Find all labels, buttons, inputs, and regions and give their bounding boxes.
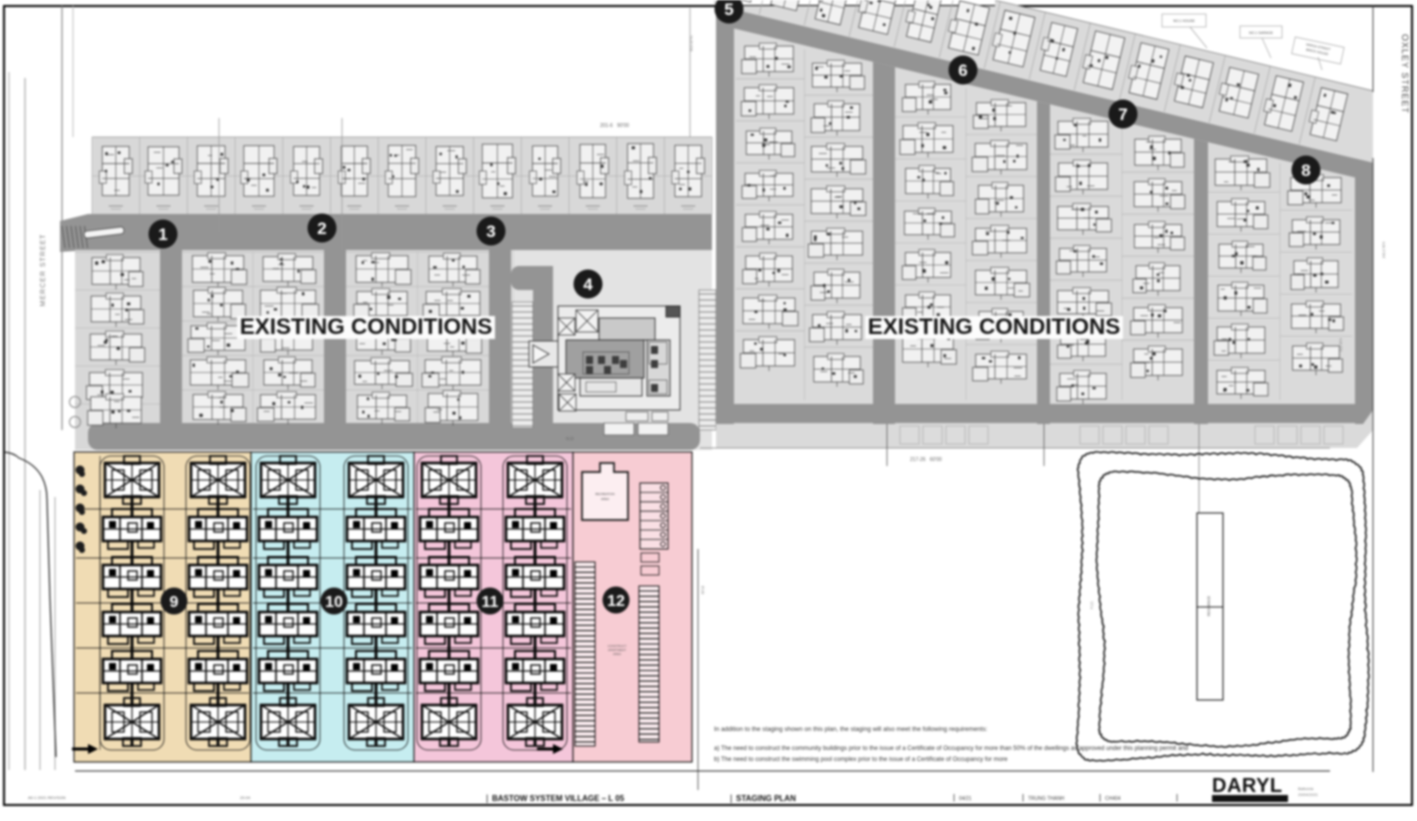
svg-text:RECREATION: RECREATION <box>595 492 614 496</box>
svg-text:CH404: CH404 <box>1105 796 1121 802</box>
svg-text:MERCER STREET: MERCER STREET <box>40 234 47 307</box>
svg-text:20/04/2021: 20/04/2021 <box>1298 792 1319 797</box>
svg-text:|: | <box>1099 793 1101 802</box>
svg-text:F121: F121 <box>1090 601 1094 609</box>
svg-text:a) The need to construct the c: a) The need to construct the community b… <box>714 745 1188 752</box>
svg-text:10: 10 <box>325 594 343 611</box>
svg-text:242-2 90'4: 242-2 90'4 <box>1382 242 1386 258</box>
svg-text:Balkonia: Balkonia <box>1298 786 1314 791</box>
svg-text:4: 4 <box>583 275 593 294</box>
svg-text:2: 2 <box>317 219 326 238</box>
svg-text:EXISTING CONDITIONS: EXISTING CONDITIONS <box>240 314 493 339</box>
svg-text:5: 5 <box>724 0 733 19</box>
svg-text:RESIDENCE: RESIDENCE <box>1207 595 1211 616</box>
svg-text:N.D: N.D <box>566 436 575 441</box>
svg-text:212 90'4: 212 90'4 <box>1339 338 1343 351</box>
svg-text:201-6 90'00: 201-6 90'00 <box>600 123 629 129</box>
svg-text:20-04: 20-04 <box>240 795 251 800</box>
svg-text:11: 11 <box>482 594 499 611</box>
svg-text:|: | <box>1022 793 1024 802</box>
svg-text:|: | <box>486 793 488 803</box>
svg-text:04/21: 04/21 <box>959 796 972 802</box>
svg-text:60'18: 60'18 <box>701 586 705 595</box>
svg-text:In addition to the staging sho: In addition to the staging shown on this… <box>714 726 988 733</box>
svg-text:AREA: AREA <box>601 497 609 501</box>
svg-text:BASTOW SYSTEM VILLAGE – L 05: BASTOW SYSTEM VILLAGE – L 05 <box>492 794 625 803</box>
svg-text:DARYL: DARYL <box>1212 775 1283 797</box>
svg-text:3: 3 <box>486 222 495 241</box>
svg-text:EXISTING CONDITIONS: EXISTING CONDITIONS <box>868 314 1121 339</box>
svg-text:12: 12 <box>607 593 625 610</box>
svg-text:|: | <box>1176 793 1178 802</box>
svg-text:9: 9 <box>170 594 179 611</box>
svg-text:|: | <box>953 793 955 802</box>
svg-text:NO.1 HOUSE: NO.1 HOUSE <box>1173 19 1195 23</box>
svg-text:1: 1 <box>158 225 167 244</box>
svg-text:NO.1 GARAGE: NO.1 GARAGE <box>1249 31 1274 35</box>
svg-text:6: 6 <box>958 61 967 80</box>
svg-text:b) The need to construct the s: b) The need to construct the swimming po… <box>714 756 1008 763</box>
svg-text:AREA: AREA <box>613 652 621 656</box>
svg-text:OXLEY STREET: OXLEY STREET <box>1400 34 1410 114</box>
svg-text:74-39 0'08: 74-39 0'08 <box>689 35 693 51</box>
svg-text:7: 7 <box>1118 105 1127 124</box>
svg-text:TRUNG THANH: TRUNG THANH <box>1028 796 1065 802</box>
svg-text:STAGING PLAN: STAGING PLAN <box>736 794 796 803</box>
svg-text:217-26 60'00: 217-26 60'00 <box>910 457 942 463</box>
svg-text:A0-1 2021 REV/SGN: A0-1 2021 REV/SGN <box>28 795 66 800</box>
svg-text:|: | <box>730 793 732 803</box>
svg-text:8: 8 <box>1301 161 1310 180</box>
